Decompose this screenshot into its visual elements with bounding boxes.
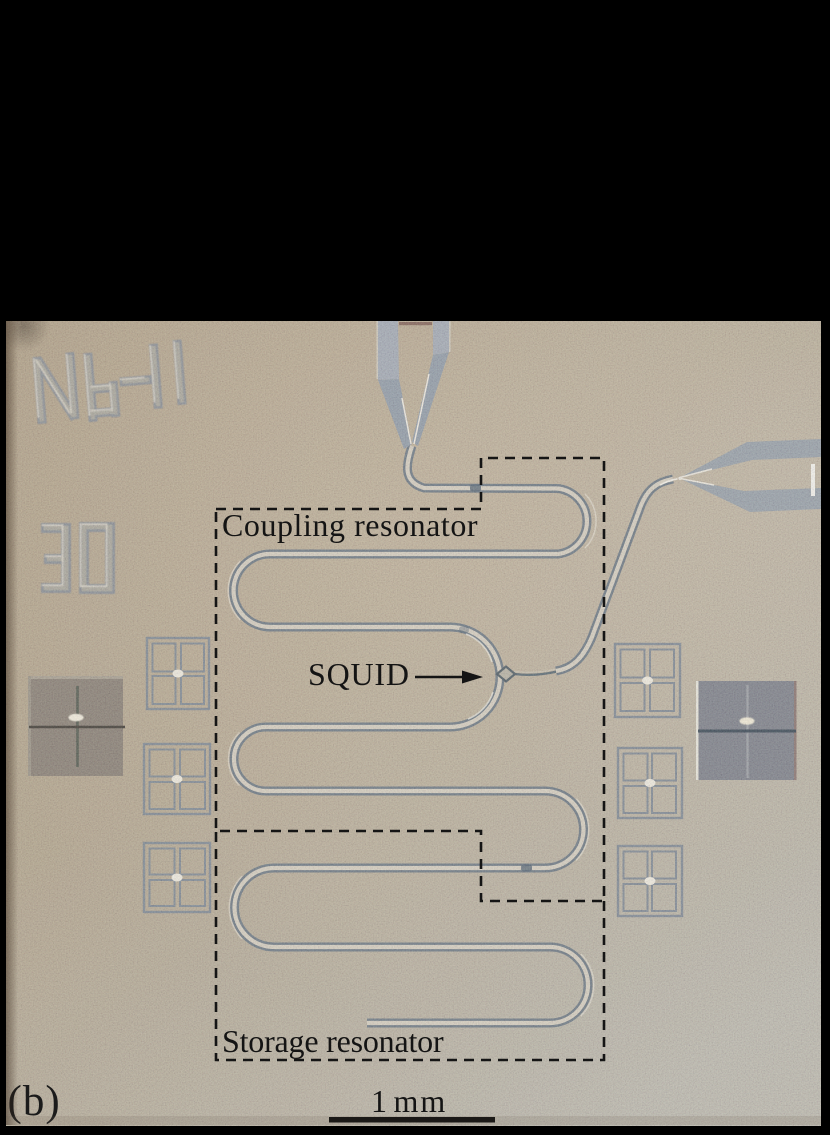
svg-text:Storage resonator: Storage resonator: [222, 1023, 444, 1059]
svg-text:Coupling resonator: Coupling resonator: [222, 507, 478, 543]
svg-text:SQUID: SQUID: [308, 656, 410, 692]
svg-text:1mm: 1mm: [371, 1083, 447, 1119]
